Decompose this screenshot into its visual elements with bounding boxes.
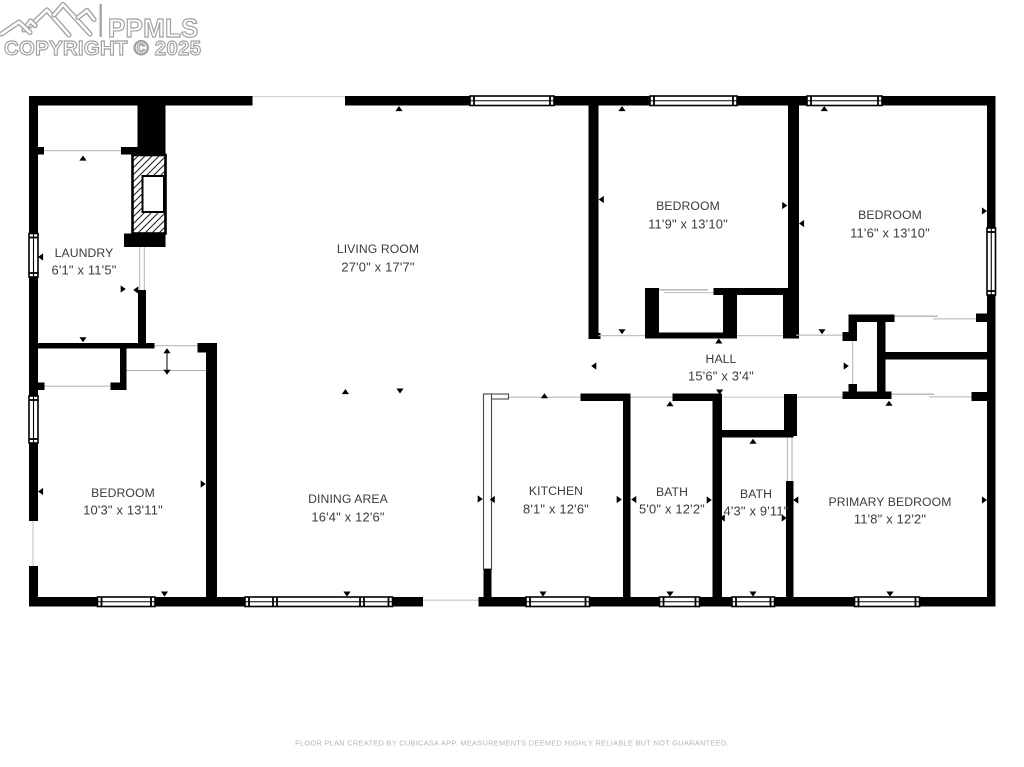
svg-text:KITCHEN: KITCHEN xyxy=(529,484,583,498)
svg-text:11'6" x 13'10": 11'6" x 13'10" xyxy=(850,226,930,241)
svg-text:BATH: BATH xyxy=(740,487,772,501)
svg-text:LIVING ROOM: LIVING ROOM xyxy=(337,242,419,256)
svg-text:DINING AREA: DINING AREA xyxy=(308,492,388,506)
svg-text:15'6" x 3'4": 15'6" x 3'4" xyxy=(688,369,754,384)
svg-text:8'1" x 12'6": 8'1" x 12'6" xyxy=(523,502,589,517)
svg-text:COPYRIGHT © 2025: COPYRIGHT © 2025 xyxy=(4,37,201,60)
svg-text:4'3" x 9'11": 4'3" x 9'11" xyxy=(724,504,789,519)
svg-text:6'1" x 11'5": 6'1" x 11'5" xyxy=(52,263,117,278)
svg-text:16'4" x 12'6": 16'4" x 12'6" xyxy=(311,510,385,525)
svg-text:5'0" x 12'2": 5'0" x 12'2" xyxy=(639,502,705,517)
svg-text:27'0" x 17'7": 27'0" x 17'7" xyxy=(341,260,415,275)
svg-text:BEDROOM: BEDROOM xyxy=(858,208,922,222)
svg-text:BEDROOM: BEDROOM xyxy=(91,486,155,500)
svg-text:BATH: BATH xyxy=(656,485,688,499)
svg-text:PRIMARY BEDROOM: PRIMARY BEDROOM xyxy=(829,495,952,509)
svg-text:11'8" x 12'2": 11'8" x 12'2" xyxy=(854,512,927,527)
svg-text:10'3" x 13'11": 10'3" x 13'11" xyxy=(83,503,163,518)
svg-text:HALL: HALL xyxy=(706,352,737,366)
svg-text:11'9" x 13'10": 11'9" x 13'10" xyxy=(648,217,728,232)
svg-text:LAUNDRY: LAUNDRY xyxy=(55,246,114,260)
svg-text:FLOOR PLAN CREATED BY CUBICASA: FLOOR PLAN CREATED BY CUBICASA APP. MEAS… xyxy=(295,739,729,748)
svg-text:BEDROOM: BEDROOM xyxy=(656,199,720,213)
